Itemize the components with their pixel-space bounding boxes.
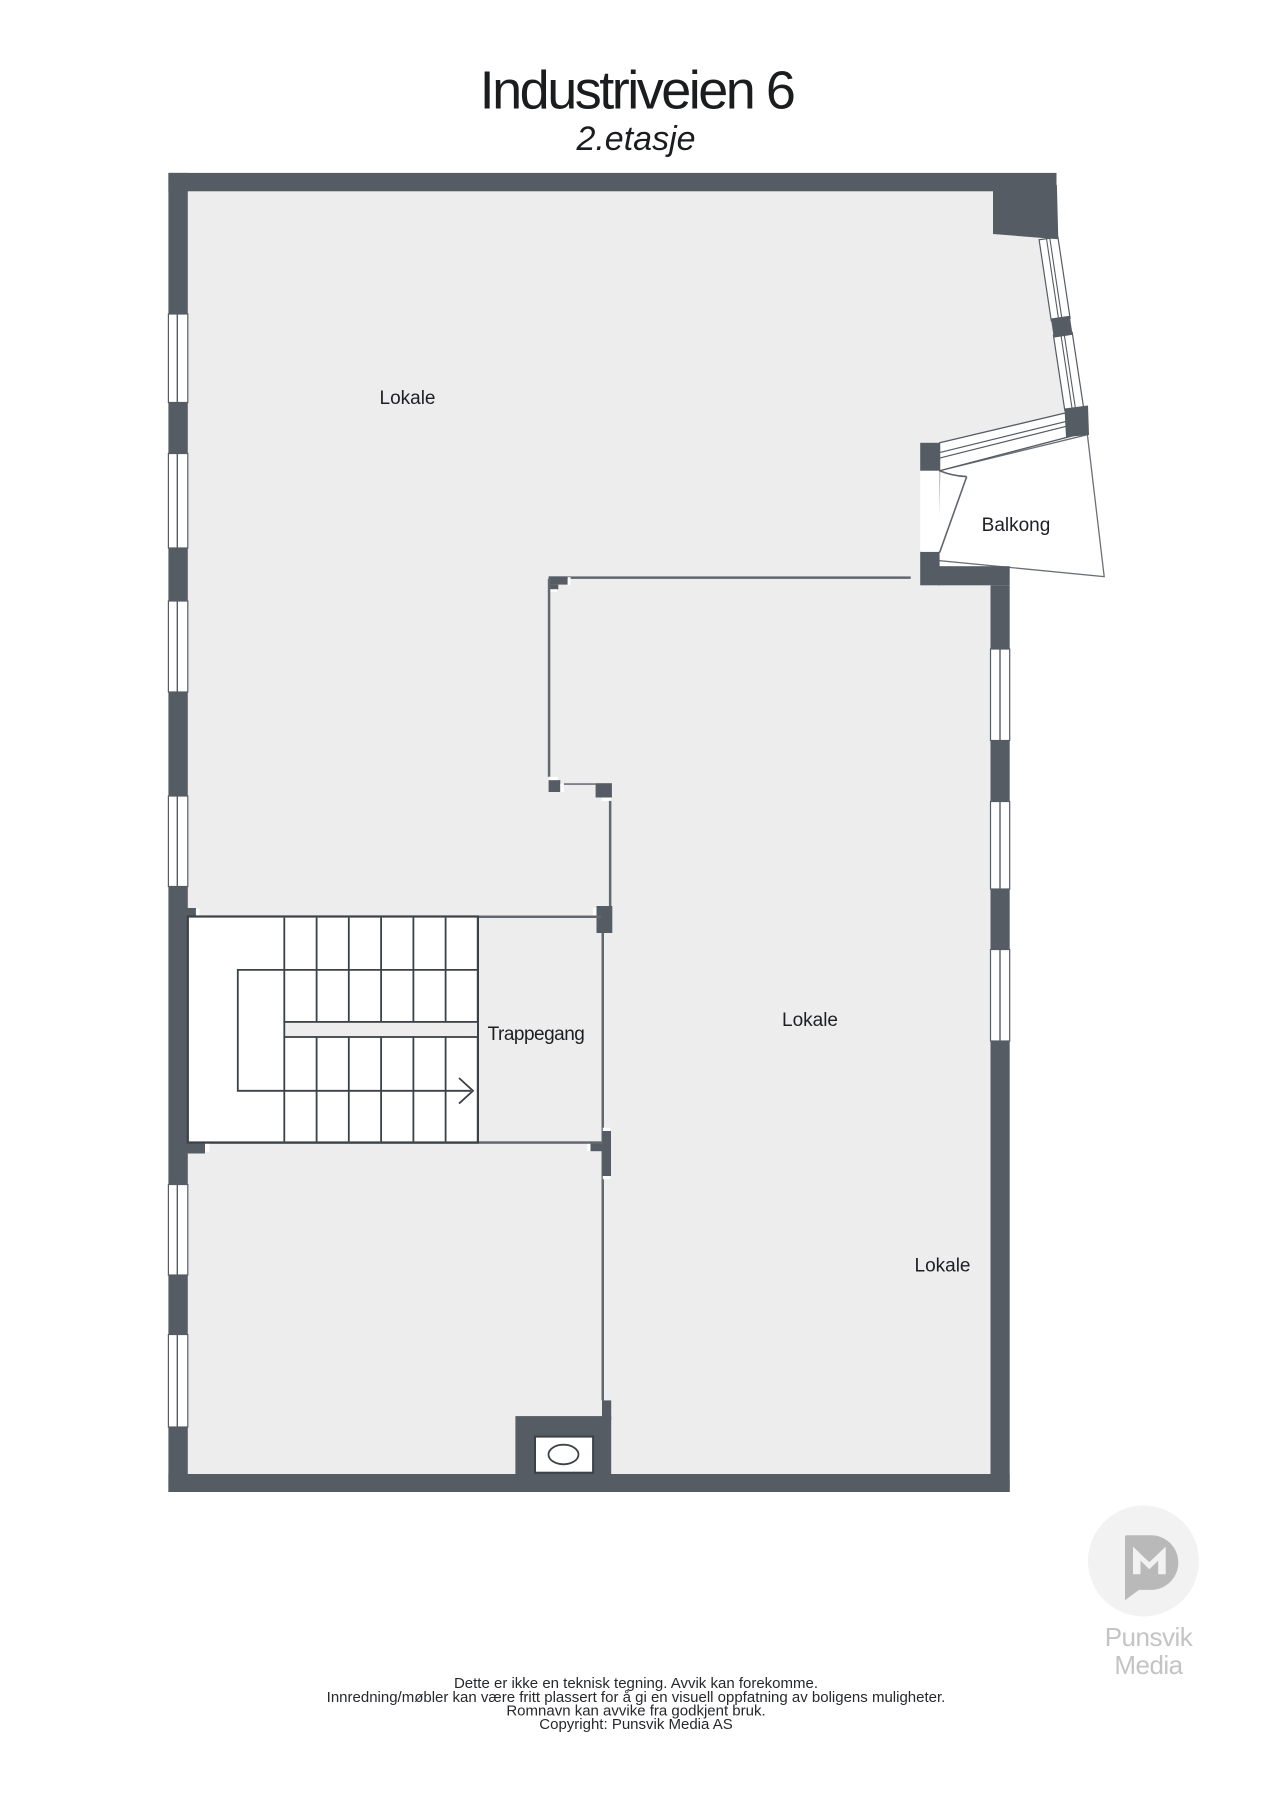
svg-text:Media: Media	[1114, 1650, 1183, 1680]
svg-text:Punsvik: Punsvik	[1105, 1622, 1194, 1652]
svg-text:Balkong: Balkong	[982, 515, 1051, 536]
svg-text:Lokale: Lokale	[915, 1256, 971, 1277]
svg-text:Trappegang: Trappegang	[488, 1024, 585, 1045]
svg-text:Industriveien 6: Industriveien 6	[480, 61, 794, 121]
svg-text:2.etasje: 2.etasje	[575, 120, 695, 158]
svg-text:Lokale: Lokale	[380, 388, 436, 409]
svg-text:Lokale: Lokale	[782, 1010, 838, 1031]
svg-text:Copyright: Punsvik Media AS: Copyright: Punsvik Media AS	[539, 1716, 732, 1733]
